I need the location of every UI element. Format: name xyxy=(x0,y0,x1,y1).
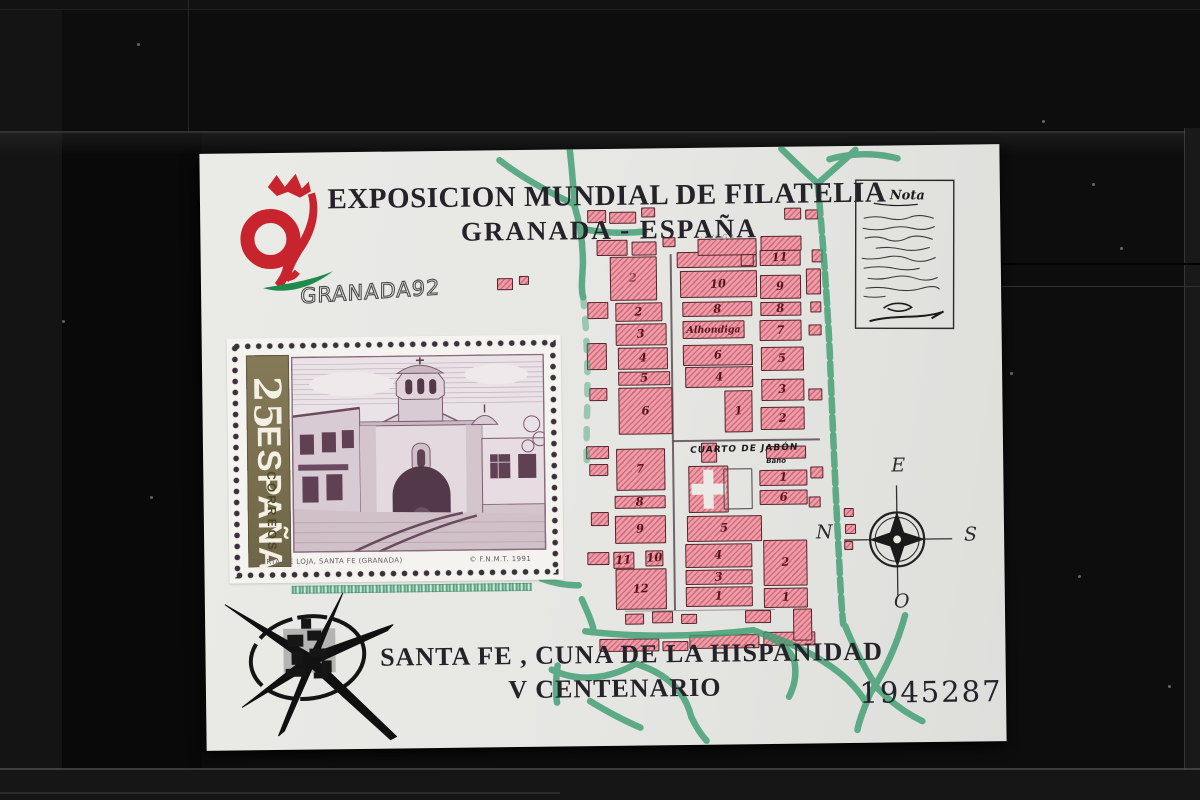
stamp-caption: PUERTA DE LOJA, SANTA FE (GRANADA) xyxy=(251,556,402,566)
sleeve-top-line xyxy=(0,9,1200,10)
perforation-right xyxy=(549,340,560,575)
dust-speck xyxy=(1092,183,1095,186)
sleeve-crease-light xyxy=(1002,286,1200,287)
dust-speck xyxy=(1078,575,1081,578)
photo-of-stamp-sheet: 223456108Alhondiga6411198753278911101254… xyxy=(0,0,1200,800)
sleeve-shadow xyxy=(62,132,202,772)
sleeve-crease-dark xyxy=(1002,263,1200,265)
compass-west-label: O xyxy=(894,590,910,612)
stamp-imprint: © F.N.M.T. 1991 xyxy=(469,555,531,564)
stamp-value-bar: 25 ESPAÑA CORREOS xyxy=(246,355,292,568)
dust-speck xyxy=(1120,247,1123,250)
dust-speck xyxy=(1042,120,1045,123)
compass-east-label: E xyxy=(890,454,905,476)
perforation-top xyxy=(232,339,556,351)
compass-rose: E S O N xyxy=(801,444,995,614)
sleeve-bottom-scratch xyxy=(0,792,560,794)
dust-speck xyxy=(62,320,65,323)
dust-speck xyxy=(1168,685,1171,688)
sleeve-left-column xyxy=(0,0,62,800)
stamp: 25 ESPAÑA CORREOS xyxy=(227,335,564,584)
map-label-bano: Baño xyxy=(766,457,787,465)
compass-north-label: N xyxy=(815,521,834,543)
sleeve-bottom-band xyxy=(0,770,1200,800)
sleeve-left-edge-line xyxy=(188,0,189,132)
compass-south-label: S xyxy=(964,523,977,545)
dust-speck xyxy=(137,43,140,46)
sleeve-right-band xyxy=(1185,128,1200,800)
souvenir-sheet: 223456108Alhondiga6411198753278911101254… xyxy=(199,144,1006,751)
stamp-engraving-puerta-de-loja xyxy=(291,354,546,553)
dust-speck xyxy=(150,496,153,499)
stamp-service: CORREOS xyxy=(264,457,279,567)
dust-speck xyxy=(1010,372,1013,375)
footer-line2: V CENTENARIO xyxy=(365,671,865,707)
sleeve-top-band xyxy=(0,0,1200,9)
sheet-subtitle: GRANADA - ESPAÑA xyxy=(409,212,809,248)
perforation-left xyxy=(231,343,242,578)
serial-number: 1945287 xyxy=(855,674,1007,710)
